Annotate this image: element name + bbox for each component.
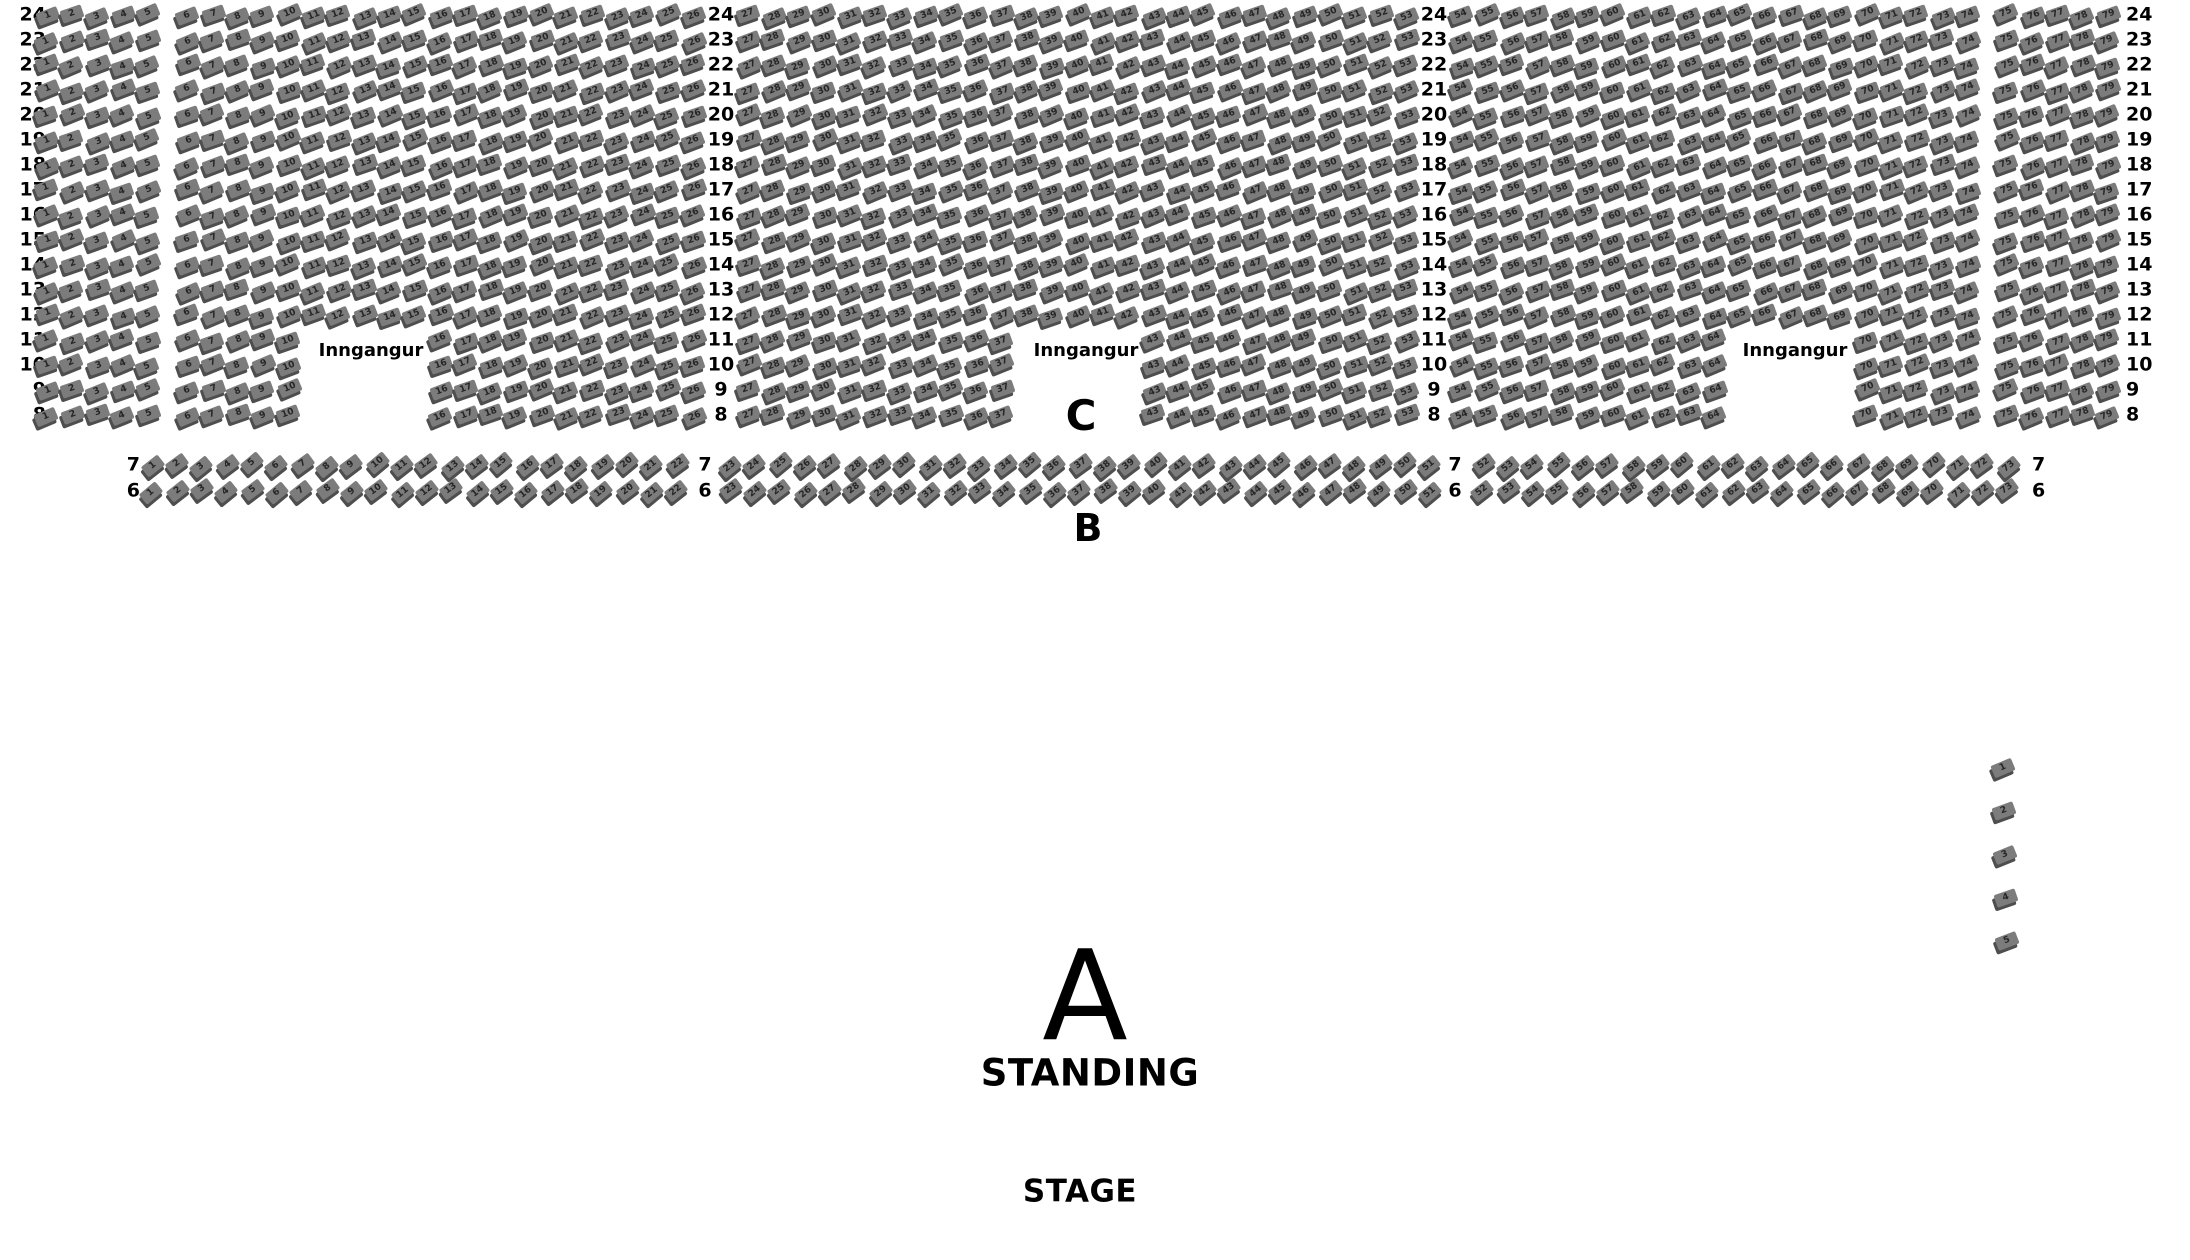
seat[interactable]: 15 xyxy=(404,206,429,225)
seat[interactable]: 63 xyxy=(1678,54,1703,74)
seat[interactable]: 62 xyxy=(1653,332,1678,352)
seat[interactable]: 20 xyxy=(529,3,554,24)
seat[interactable]: 19 xyxy=(503,328,528,348)
seat[interactable]: 55 xyxy=(1474,180,1499,200)
seat[interactable]: 18 xyxy=(479,403,504,422)
seat[interactable]: 72 xyxy=(1905,103,1930,123)
seat[interactable]: 2 xyxy=(59,56,84,77)
seat[interactable]: 34 xyxy=(914,156,939,176)
seat[interactable]: 68 xyxy=(1805,106,1830,126)
seat[interactable]: 64 xyxy=(1770,480,1795,503)
seat[interactable]: 73 xyxy=(1931,231,1956,251)
seat[interactable]: 78 xyxy=(2071,403,2096,422)
seat[interactable]: 9 xyxy=(251,31,276,51)
seat[interactable]: 63 xyxy=(1677,403,1702,422)
seat[interactable]: 58 xyxy=(1549,257,1574,277)
seat[interactable]: 25 xyxy=(657,81,682,100)
seat[interactable]: 7 xyxy=(201,82,226,102)
seat[interactable]: 24 xyxy=(742,453,767,476)
seat[interactable]: 11 xyxy=(302,256,327,276)
seat[interactable]: 32 xyxy=(864,254,889,273)
seat[interactable]: 3 xyxy=(85,257,110,277)
seat[interactable]: 10 xyxy=(276,279,301,299)
seat[interactable]: 16 xyxy=(427,256,452,276)
seat[interactable]: 50 xyxy=(1318,232,1343,252)
seat[interactable]: 70 xyxy=(1922,451,1946,474)
seat[interactable]: 3 xyxy=(85,28,110,47)
seat[interactable]: 65 xyxy=(1727,206,1752,225)
seat[interactable]: 53 xyxy=(1394,7,1419,27)
seat[interactable]: 53 xyxy=(1393,278,1418,297)
seat[interactable]: 69 xyxy=(1830,203,1855,223)
seat[interactable]: 47 xyxy=(1242,379,1267,398)
seat[interactable]: 4 xyxy=(110,203,135,223)
seat[interactable]: 8 xyxy=(225,356,250,376)
seat[interactable]: 65 xyxy=(1728,154,1753,174)
seat[interactable]: 10 xyxy=(275,404,300,424)
seat[interactable]: 73 xyxy=(1930,278,1955,297)
seat[interactable]: 42 xyxy=(1117,280,1142,300)
seat[interactable]: 26 xyxy=(682,329,707,349)
seat[interactable]: 43 xyxy=(1142,80,1167,101)
seat[interactable]: 30 xyxy=(811,378,836,399)
seat[interactable]: 24 xyxy=(629,5,654,25)
seat[interactable]: 69 xyxy=(1828,307,1853,326)
seat[interactable]: 40 xyxy=(1064,29,1089,49)
seat[interactable]: 37 xyxy=(990,306,1015,327)
seat[interactable]: 33 xyxy=(887,80,912,101)
seat[interactable]: 27 xyxy=(736,405,761,425)
seat[interactable]: 64 xyxy=(1702,354,1727,375)
seat[interactable]: 28 xyxy=(763,231,788,251)
seat[interactable]: 15 xyxy=(404,128,429,149)
seat[interactable]: 70 xyxy=(1853,331,1878,350)
seat[interactable]: 64 xyxy=(1701,104,1726,125)
seat[interactable]: 9 xyxy=(251,255,276,275)
seat[interactable]: 76 xyxy=(2019,329,2044,349)
seat[interactable]: 20 xyxy=(529,305,554,325)
seat[interactable]: 62 xyxy=(1652,228,1677,248)
seat[interactable]: 61 xyxy=(1627,381,1652,401)
seat[interactable]: 78 xyxy=(2069,382,2094,402)
seat[interactable]: 31 xyxy=(838,157,863,178)
seat[interactable]: 33 xyxy=(968,478,993,501)
seat[interactable]: 27 xyxy=(736,332,761,352)
seat[interactable]: 18 xyxy=(477,304,502,324)
seat[interactable]: 62 xyxy=(1652,379,1677,398)
seat[interactable]: 39 xyxy=(1041,57,1066,76)
seat[interactable]: 43 xyxy=(1140,257,1165,277)
seat[interactable]: 55 xyxy=(1476,81,1501,100)
seat[interactable]: 67 xyxy=(1778,280,1803,300)
seat[interactable]: 5 xyxy=(136,305,161,325)
seat[interactable]: 49 xyxy=(1294,380,1319,400)
seat[interactable]: 53 xyxy=(1393,54,1418,74)
seat[interactable]: 49 xyxy=(1292,182,1317,201)
seat[interactable]: 43 xyxy=(1140,28,1165,47)
seat[interactable]: 24 xyxy=(631,130,656,150)
seat[interactable]: 22 xyxy=(579,254,604,273)
seat[interactable]: 45 xyxy=(1191,154,1216,174)
seat[interactable]: 27 xyxy=(736,30,761,50)
seat[interactable]: 64 xyxy=(1702,57,1727,76)
seat[interactable]: 71 xyxy=(1878,53,1903,73)
seat[interactable]: 52 xyxy=(1370,155,1395,175)
seat[interactable]: 66 xyxy=(1753,256,1778,276)
seat[interactable]: 57 xyxy=(1525,181,1550,202)
seat[interactable]: 61 xyxy=(1625,329,1650,349)
seat[interactable]: 39 xyxy=(1039,156,1064,176)
seat[interactable]: 9 xyxy=(251,182,276,201)
seat[interactable]: 65 xyxy=(1728,81,1753,100)
seat[interactable]: 45 xyxy=(1192,253,1217,274)
seat[interactable]: 31 xyxy=(837,204,862,224)
seat[interactable]: 65 xyxy=(1728,305,1753,325)
seat[interactable]: 43 xyxy=(1141,54,1166,74)
seat[interactable]: 3 xyxy=(84,382,109,402)
seat[interactable]: 45 xyxy=(1268,478,1293,501)
seat[interactable]: 63 xyxy=(1677,106,1702,126)
seat[interactable]: 36 xyxy=(964,407,989,428)
seat[interactable]: 33 xyxy=(887,153,912,172)
seat[interactable]: 57 xyxy=(1525,254,1550,273)
seat[interactable]: 13 xyxy=(441,455,466,478)
seat[interactable]: 54 xyxy=(1521,480,1546,503)
seat[interactable]: 6 xyxy=(265,481,289,504)
seat[interactable]: 19 xyxy=(589,480,614,503)
seat[interactable]: 29 xyxy=(787,380,812,400)
seat[interactable]: 62 xyxy=(1722,479,1747,502)
seat[interactable]: 76 xyxy=(2019,407,2044,428)
seat[interactable]: 16 xyxy=(427,407,452,428)
seat[interactable]: 13 xyxy=(352,54,377,74)
seat[interactable]: 9 xyxy=(250,380,275,400)
seat[interactable]: 32 xyxy=(863,379,888,398)
seat[interactable]: 51 xyxy=(1344,53,1369,73)
seat[interactable]: 11 xyxy=(300,53,325,73)
seat[interactable]: 20 xyxy=(530,29,555,49)
seat[interactable]: 37 xyxy=(990,82,1015,102)
seat[interactable]: 71 xyxy=(1878,282,1903,303)
seat[interactable]: 48 xyxy=(1266,80,1291,101)
seat[interactable]: 75 xyxy=(1995,29,2020,49)
seat[interactable]: 29 xyxy=(786,203,811,223)
seat[interactable]: 22 xyxy=(581,155,606,175)
seat[interactable]: 7 xyxy=(199,332,224,352)
seat[interactable]: 60 xyxy=(1602,206,1627,225)
seat[interactable]: 61 xyxy=(1626,282,1651,303)
seat[interactable]: 3 xyxy=(190,478,215,501)
seat[interactable]: 53 xyxy=(1497,478,1522,501)
seat[interactable]: 51 xyxy=(1344,282,1369,303)
seat[interactable]: 25 xyxy=(656,128,681,149)
seat[interactable]: 30 xyxy=(811,305,836,325)
seat[interactable]: 33 xyxy=(887,304,912,324)
seat[interactable]: 46 xyxy=(1218,303,1243,323)
seat[interactable]: 18 xyxy=(478,153,503,172)
seat[interactable]: 35 xyxy=(938,357,963,377)
seat[interactable]: 43 xyxy=(1140,403,1165,422)
seat[interactable]: 18 xyxy=(478,330,503,351)
seat[interactable]: 17 xyxy=(452,280,477,300)
seat[interactable]: 33 xyxy=(889,54,914,74)
seat[interactable]: 34 xyxy=(912,182,937,201)
seat[interactable]: 51 xyxy=(1343,178,1368,198)
seat[interactable]: 62 xyxy=(1652,155,1677,175)
seat[interactable]: 4 xyxy=(111,229,136,250)
seat[interactable]: 30 xyxy=(811,154,836,174)
seat[interactable]: 56 xyxy=(1500,230,1525,249)
seat[interactable]: 68 xyxy=(1803,7,1828,27)
seat[interactable]: 66 xyxy=(1754,204,1779,224)
seat[interactable]: 32 xyxy=(862,280,887,300)
seat[interactable]: 53 xyxy=(1496,455,1521,478)
seat[interactable]: 44 xyxy=(1167,255,1192,275)
seat[interactable]: 39 xyxy=(1039,229,1064,250)
seat[interactable]: 41 xyxy=(1091,178,1116,198)
seat[interactable]: 75 xyxy=(1995,180,2020,200)
seat[interactable]: 9 xyxy=(251,328,276,348)
seat[interactable]: 13 xyxy=(353,231,378,251)
seat[interactable]: 44 xyxy=(1167,104,1192,125)
seat[interactable]: 61 xyxy=(1626,131,1651,151)
seat[interactable]: 16 xyxy=(427,178,452,198)
seat[interactable]: 9 xyxy=(250,307,275,326)
seat[interactable]: 43 xyxy=(1217,478,1242,501)
seat[interactable]: 22 xyxy=(579,181,604,202)
seat[interactable]: 25 xyxy=(656,206,681,225)
seat[interactable]: 28 xyxy=(761,205,786,226)
seat[interactable]: 3 xyxy=(86,132,111,152)
seat[interactable]: 77 xyxy=(2045,379,2070,398)
seat[interactable]: 46 xyxy=(1292,481,1316,504)
seat[interactable]: 12 xyxy=(328,56,353,77)
seat[interactable]: 49 xyxy=(1293,281,1318,301)
seat[interactable]: 61 xyxy=(1627,6,1652,26)
seat[interactable]: 57 xyxy=(1526,353,1551,373)
seat[interactable]: 1 xyxy=(139,481,163,504)
seat[interactable]: 7 xyxy=(200,129,225,148)
seat[interactable]: 31 xyxy=(836,178,861,198)
seat[interactable]: 14 xyxy=(377,5,402,25)
seat[interactable]: 31 xyxy=(838,381,863,401)
seat[interactable]: 71 xyxy=(1879,157,1904,178)
seat[interactable]: 16 xyxy=(516,454,541,477)
seat[interactable]: 29 xyxy=(787,307,812,326)
seat[interactable]: 14 xyxy=(466,480,491,503)
seat[interactable]: 31 xyxy=(838,6,863,26)
seat[interactable]: 2 xyxy=(60,228,85,248)
seat[interactable]: 47 xyxy=(1319,479,1344,502)
seat[interactable]: 68 xyxy=(1803,278,1828,297)
seat[interactable]: 67 xyxy=(1847,453,1872,476)
seat[interactable]: 57 xyxy=(1595,453,1620,476)
seat[interactable]: 35 xyxy=(939,232,964,252)
seat[interactable]: 65 xyxy=(1728,232,1753,252)
seat[interactable]: 71 xyxy=(1879,230,1904,249)
seat[interactable]: 35 xyxy=(938,279,963,299)
seat[interactable]: 56 xyxy=(1500,303,1525,323)
seat[interactable]: 79 xyxy=(2095,182,2120,201)
seat[interactable]: 20 xyxy=(529,154,554,174)
seat[interactable]: 29 xyxy=(787,156,812,176)
seat[interactable]: 19 xyxy=(504,281,529,301)
seat[interactable]: 70 xyxy=(1855,81,1880,100)
seat[interactable]: 4 xyxy=(110,57,135,76)
seat[interactable]: 64 xyxy=(1703,380,1728,400)
seat[interactable]: 46 xyxy=(1216,256,1241,276)
seat[interactable]: 6 xyxy=(175,32,200,53)
seat[interactable]: 21 xyxy=(554,178,579,198)
seat[interactable]: 30 xyxy=(812,253,837,274)
seat[interactable]: 79 xyxy=(2097,78,2122,98)
seat[interactable]: 22 xyxy=(581,82,606,102)
seat[interactable]: 42 xyxy=(1117,129,1142,148)
seat[interactable]: 52 xyxy=(1370,306,1395,327)
seat[interactable]: 72 xyxy=(1906,280,1931,300)
seat[interactable]: 50 xyxy=(1318,3,1343,24)
seat[interactable]: 56 xyxy=(1500,157,1525,178)
seat[interactable]: 52 xyxy=(1368,254,1393,273)
seat[interactable]: 75 xyxy=(1994,81,2019,100)
seat[interactable]: 30 xyxy=(812,404,837,424)
seat[interactable]: 14 xyxy=(465,453,490,476)
seat[interactable]: 44 xyxy=(1166,380,1191,400)
seat[interactable]: 42 xyxy=(1115,228,1140,248)
seat[interactable]: 17 xyxy=(453,4,478,23)
seat[interactable]: 68 xyxy=(1802,132,1827,152)
seat[interactable]: 13 xyxy=(439,478,464,501)
seat[interactable]: 72 xyxy=(1906,56,1931,77)
seat[interactable]: 61 xyxy=(1626,355,1651,374)
seat[interactable]: 27 xyxy=(735,82,760,102)
seat[interactable]: 70 xyxy=(1854,128,1879,149)
seat[interactable]: 19 xyxy=(505,5,530,25)
seat[interactable]: 19 xyxy=(503,31,528,51)
seat[interactable]: 3 xyxy=(84,80,109,101)
seat[interactable]: 24 xyxy=(630,104,655,125)
seat[interactable]: 34 xyxy=(912,406,937,426)
seat[interactable]: 28 xyxy=(761,106,786,126)
seat[interactable]: 11 xyxy=(300,204,325,224)
seat[interactable]: 8 xyxy=(227,28,252,47)
seat[interactable]: 59 xyxy=(1647,480,1672,503)
seat[interactable]: 10 xyxy=(276,357,301,377)
seat[interactable]: 38 xyxy=(1014,278,1039,297)
seat[interactable]: 79 xyxy=(2097,229,2122,250)
seat[interactable]: 8 xyxy=(227,106,252,126)
seat[interactable]: 43 xyxy=(1219,455,1244,478)
seat[interactable]: 32 xyxy=(862,353,887,373)
seat[interactable]: 70 xyxy=(1855,305,1880,325)
seat[interactable]: 71 xyxy=(1880,105,1905,124)
seat[interactable]: 60 xyxy=(1600,81,1625,100)
seat[interactable]: 11 xyxy=(301,157,326,178)
seat[interactable]: 3 xyxy=(84,304,109,324)
seat[interactable]: 9 xyxy=(250,156,275,176)
seat[interactable]: 54 xyxy=(1450,203,1475,223)
seat[interactable]: 14 xyxy=(378,182,403,201)
seat[interactable]: 26 xyxy=(681,381,706,401)
seat[interactable]: 11 xyxy=(302,32,327,53)
seat[interactable]: 5 xyxy=(136,232,161,252)
seat[interactable]: 67 xyxy=(1779,4,1804,23)
seat[interactable]: 69 xyxy=(1829,31,1854,51)
seat[interactable]: 54 xyxy=(1448,5,1473,25)
seat[interactable]: 37 xyxy=(988,332,1013,352)
seat[interactable]: 57 xyxy=(1524,306,1549,327)
seat[interactable]: 71 xyxy=(1880,329,1905,349)
seat[interactable]: 39 xyxy=(1118,480,1143,503)
seat[interactable]: 52 xyxy=(1370,4,1395,23)
seat[interactable]: 22 xyxy=(580,129,605,148)
seat[interactable]: 29 xyxy=(788,328,813,348)
seat[interactable]: 4 xyxy=(109,328,134,348)
seat[interactable]: 37 xyxy=(990,155,1015,175)
seat[interactable]: 25 xyxy=(655,180,680,200)
seat[interactable]: 42 xyxy=(1193,479,1218,502)
seat[interactable]: 67 xyxy=(1779,228,1804,248)
seat[interactable]: 78 xyxy=(2070,153,2095,172)
seat[interactable]: 46 xyxy=(1218,381,1243,401)
seat[interactable]: 30 xyxy=(812,180,837,200)
seat[interactable]: 57 xyxy=(1526,207,1551,227)
seat[interactable]: 36 xyxy=(963,157,988,178)
seat[interactable]: 18 xyxy=(478,231,503,251)
seat[interactable]: 57 xyxy=(1596,479,1621,502)
seat[interactable]: 27 xyxy=(737,56,762,77)
seat[interactable]: 53 xyxy=(1394,231,1419,251)
seat[interactable]: 46 xyxy=(1217,282,1242,303)
seat[interactable]: 64 xyxy=(1701,182,1726,201)
seat[interactable]: 17 xyxy=(454,332,479,352)
seat[interactable]: 72 xyxy=(1904,82,1929,102)
seat[interactable]: 21 xyxy=(555,53,580,73)
seat[interactable]: 35 xyxy=(940,404,965,424)
seat[interactable]: 72 xyxy=(1905,405,1930,425)
seat[interactable]: 37 xyxy=(990,228,1015,248)
seat[interactable]: 47 xyxy=(1243,405,1268,425)
seat[interactable]: 26 xyxy=(681,79,706,99)
seat[interactable]: 55 xyxy=(1476,154,1501,174)
seat[interactable]: 60 xyxy=(1601,180,1626,200)
seat[interactable]: 28 xyxy=(844,455,869,478)
seat[interactable]: 61 xyxy=(1697,454,1722,477)
seat[interactable]: 9 xyxy=(251,406,276,426)
seat[interactable]: 49 xyxy=(1293,203,1318,223)
seat[interactable]: 14 xyxy=(376,203,401,223)
seat[interactable]: 26 xyxy=(681,6,706,26)
seat[interactable]: 8 xyxy=(226,179,251,199)
seat[interactable]: 57 xyxy=(1526,129,1551,148)
seat[interactable]: 21 xyxy=(554,329,579,349)
seat[interactable]: 27 xyxy=(737,353,762,373)
seat[interactable]: 23 xyxy=(604,132,629,152)
seat[interactable]: 46 xyxy=(1218,6,1243,26)
seat[interactable]: 70 xyxy=(1855,154,1880,174)
seat[interactable]: 68 xyxy=(1803,80,1828,101)
seat[interactable]: 26 xyxy=(682,105,707,124)
seat[interactable]: 43 xyxy=(1142,304,1167,324)
seat[interactable]: 29 xyxy=(787,229,812,250)
seat[interactable]: 57 xyxy=(1524,228,1549,248)
seat[interactable]: 16 xyxy=(514,481,538,504)
seat[interactable]: 8 xyxy=(225,304,250,324)
seat[interactable]: 17 xyxy=(453,379,478,398)
seat[interactable]: 4 xyxy=(1993,888,2018,907)
seat[interactable]: 18 xyxy=(479,28,504,47)
seat[interactable]: 77 xyxy=(2046,405,2071,425)
